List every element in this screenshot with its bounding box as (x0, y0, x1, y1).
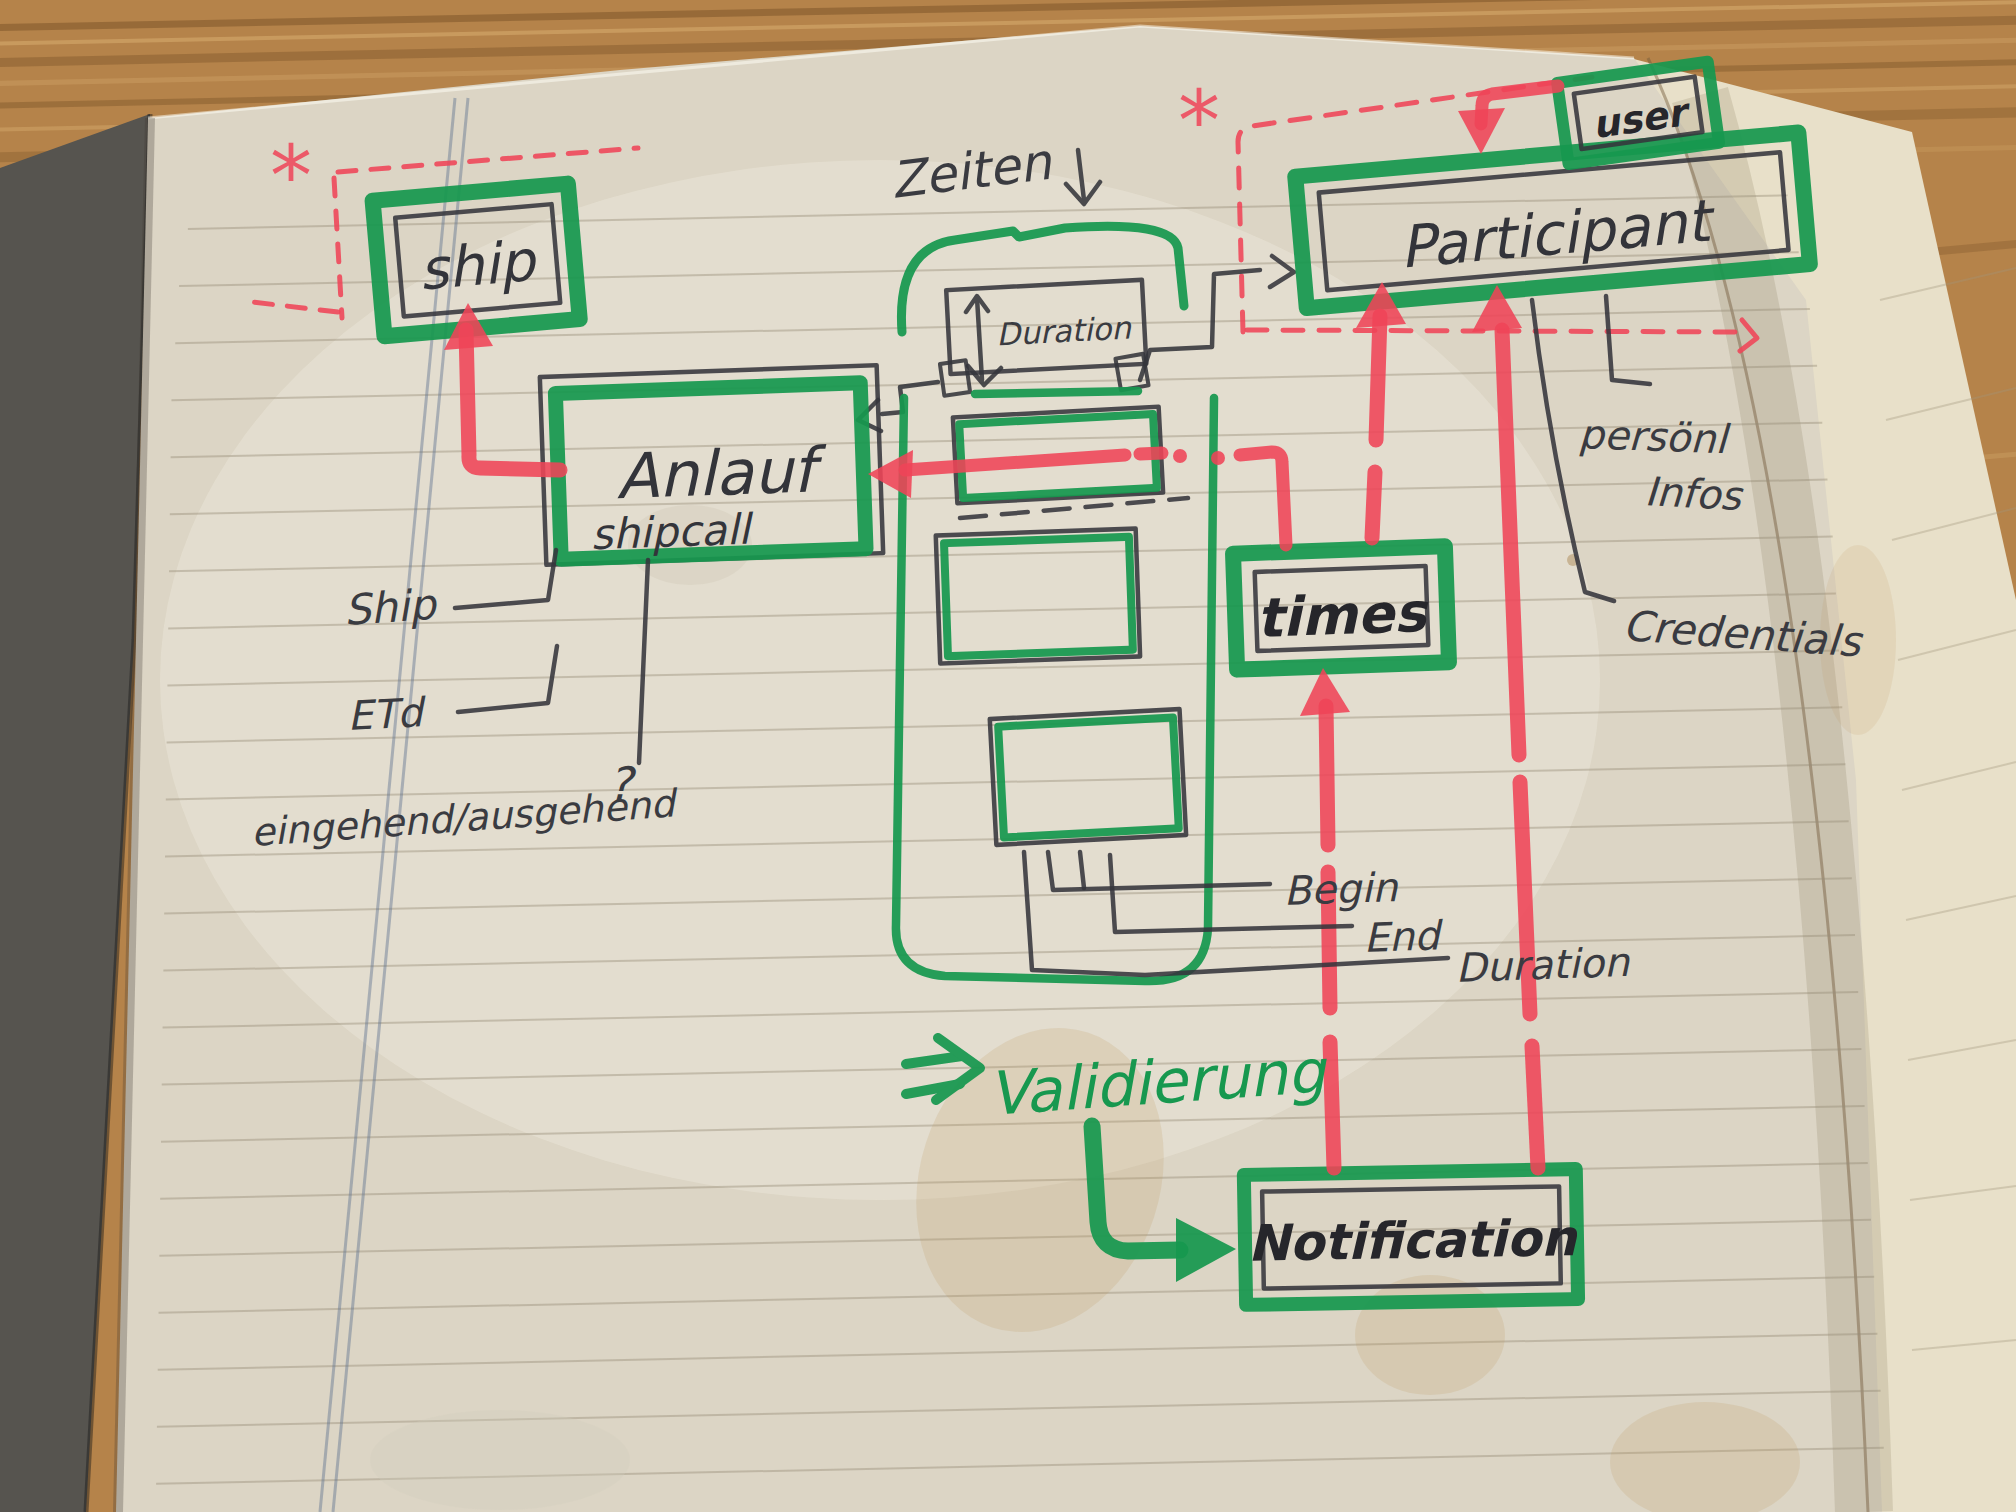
personal-infos-line2: Infos (1644, 468, 1746, 519)
anlauf-sublabel: shipcall (590, 505, 755, 560)
notification-label: Notification (1247, 1209, 1579, 1273)
ship-label: ship (416, 228, 540, 303)
begin-attr-label: Begin (1283, 864, 1400, 914)
participant-cardinality-asterisk: * (1178, 72, 1220, 170)
times-label: times (1256, 581, 1430, 650)
eta-attr-label: ETd (346, 689, 428, 739)
duration-box-label: Duration (995, 309, 1133, 352)
ship-attr-label: Ship (342, 580, 439, 635)
notebook-photo: * * Zeiten Duration (0, 0, 2016, 1512)
end-attr-label: End (1363, 912, 1445, 961)
personal-infos-line1: persönl (1578, 411, 1732, 462)
ship-cardinality-asterisk: * (270, 127, 312, 225)
anlauf-label: Anlauf (615, 433, 829, 513)
duration-attr-label: Duration (1455, 939, 1632, 991)
